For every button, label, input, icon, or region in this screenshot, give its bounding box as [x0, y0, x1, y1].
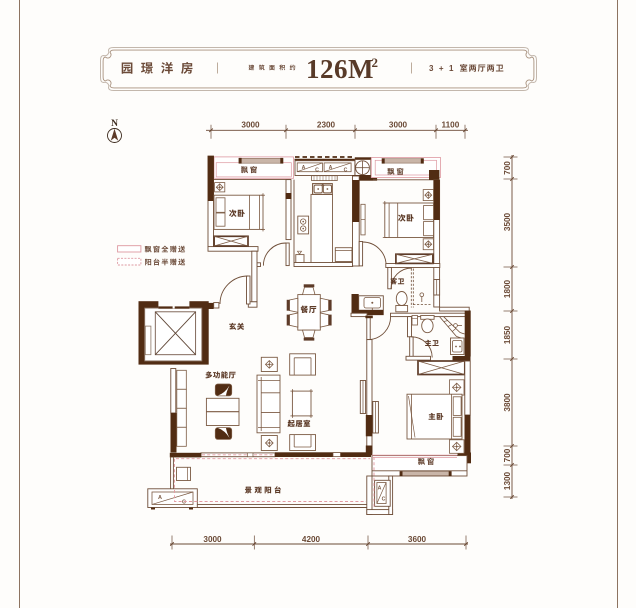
- svg-text:4200: 4200: [302, 535, 321, 544]
- svg-text:3000: 3000: [203, 535, 222, 544]
- svg-text:2300: 2300: [317, 120, 336, 129]
- svg-text:1300: 1300: [503, 471, 512, 490]
- svg-text:C: C: [382, 497, 386, 503]
- svg-text:700: 700: [503, 161, 512, 175]
- svg-text:1850: 1850: [503, 325, 512, 344]
- svg-text:3 + 1: 3 + 1: [429, 64, 455, 73]
- svg-text:3600: 3600: [408, 535, 427, 544]
- svg-text:N: N: [111, 119, 118, 129]
- svg-text:A: A: [302, 165, 306, 171]
- svg-text:C: C: [315, 168, 319, 174]
- svg-text:3800: 3800: [503, 393, 512, 412]
- svg-text:3500: 3500: [503, 212, 512, 231]
- svg-text:A: A: [378, 486, 382, 492]
- svg-text:126M: 126M: [306, 54, 374, 84]
- svg-text:A: A: [329, 165, 333, 171]
- svg-text:A: A: [158, 495, 162, 501]
- svg-text:700: 700: [503, 448, 512, 462]
- svg-text:C: C: [344, 168, 348, 174]
- svg-text:3000: 3000: [389, 120, 408, 129]
- svg-text:2: 2: [372, 55, 379, 70]
- svg-text:3000: 3000: [241, 120, 260, 129]
- svg-text:C: C: [182, 500, 186, 506]
- svg-text:1800: 1800: [503, 279, 512, 298]
- svg-text:1100: 1100: [442, 120, 460, 129]
